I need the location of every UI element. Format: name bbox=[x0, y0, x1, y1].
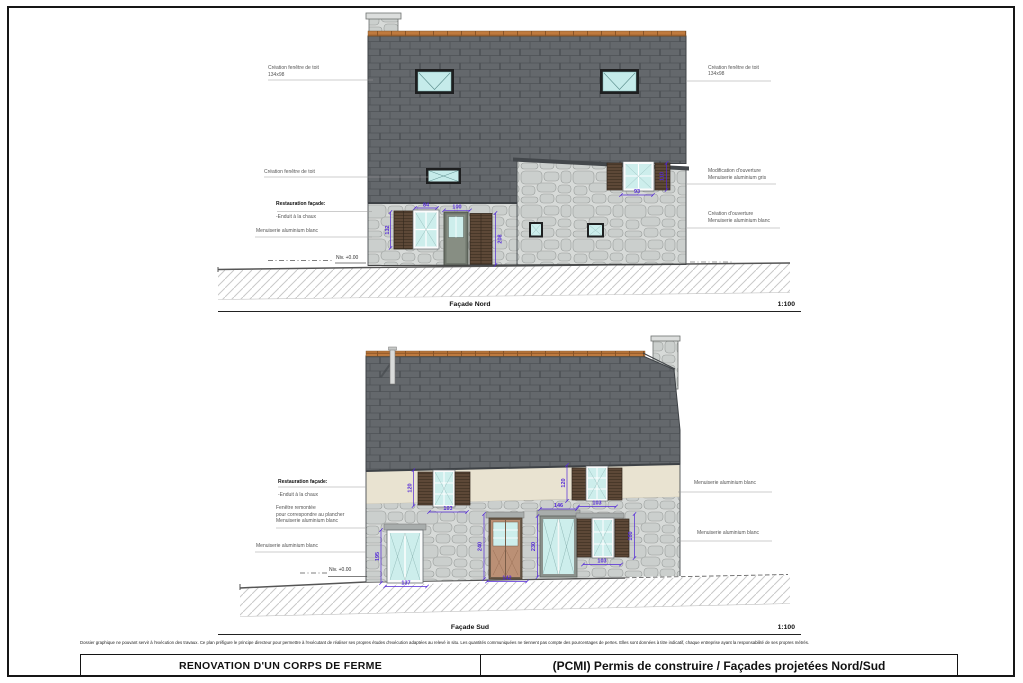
upper-window-sud-1 bbox=[418, 470, 470, 507]
annotation-menuiserie-sud-right-1: Menuiserie aluminium blanc bbox=[694, 480, 756, 487]
small-window-nord-1 bbox=[529, 222, 543, 238]
annotation-title: Restauration façade: bbox=[276, 201, 325, 208]
window-nord-left bbox=[413, 210, 439, 249]
disclaimer-text: Dossier graphique ne pouvant servir à l'… bbox=[80, 640, 962, 645]
dim-upper2-height: 120 bbox=[561, 478, 567, 487]
small-window-nord-2 bbox=[587, 223, 604, 238]
dim-glazed-door-height: 230 bbox=[531, 542, 537, 551]
roof-window-right bbox=[600, 69, 639, 94]
dim-upper1-width: 103 bbox=[443, 506, 452, 512]
elevation-drawings: 84 100 132 208 93 110 bbox=[0, 0, 1023, 683]
roof-sud bbox=[366, 351, 680, 472]
dim-upper2-width: 103 bbox=[592, 501, 601, 507]
annotation-roof-window-right: Création fenêtre de toit 134x98 bbox=[708, 65, 759, 78]
scale-facade-nord: 1:100 bbox=[758, 301, 795, 308]
annotation-menuiserie-nord-left: Menuiserie aluminium blanc bbox=[256, 228, 318, 235]
annotation-roof-window-small: Création fenêtre de toit bbox=[264, 169, 315, 176]
level-label-nord: Niv. +0.00 bbox=[336, 255, 358, 261]
dim-upper-window-height: 110 bbox=[660, 172, 666, 181]
level-line-sud bbox=[300, 573, 367, 577]
annotation-title: Restauration façade: bbox=[278, 479, 327, 486]
upper-window-sud-2 bbox=[572, 466, 622, 501]
annotation-restauration-facade-sud: Restauration façade: -Enduit à la chaux bbox=[278, 472, 327, 505]
dim-door-width: 142 bbox=[502, 576, 511, 582]
annotation-menuiserie-sud-left: Menuiserie aluminium blanc bbox=[256, 543, 318, 550]
level-label-sud: Niv. +0.00 bbox=[329, 567, 351, 573]
roof-window-left bbox=[415, 69, 454, 94]
roof-window-small bbox=[426, 168, 461, 184]
drawing-sheet: 84 100 132 208 93 110 bbox=[0, 0, 1023, 683]
annotation-text: -Enduit à la chaux bbox=[276, 214, 325, 221]
caption-facade-sud: Façade Sud bbox=[390, 624, 550, 631]
facade-nord-drawing: 84 100 132 208 93 110 bbox=[218, 13, 801, 312]
dim-tall-window-height: 195 bbox=[375, 552, 381, 561]
annotation-roof-window-left: Création fenêtre de toit 134x98 bbox=[268, 65, 319, 78]
ridge-tiles bbox=[366, 351, 645, 356]
dim-upper-window-width: 93 bbox=[634, 189, 640, 195]
louvered-panel-nord bbox=[470, 214, 492, 265]
title-block: RENOVATION D'UN CORPS DE FERME (PCMI) Pe… bbox=[80, 654, 958, 677]
tall-window-sud bbox=[384, 524, 426, 583]
annotation-creation-ouverture: Création d'ouverture Menuiserie aluminiu… bbox=[708, 211, 770, 224]
project-title: RENOVATION D'UN CORPS DE FERME bbox=[81, 655, 481, 676]
document-title: (PCMI) Permis de construire / Façades pr… bbox=[481, 655, 957, 676]
dim-window-height: 132 bbox=[385, 225, 391, 234]
dim-tall-window-width: 137 bbox=[401, 581, 410, 587]
annotation-text: -Enduit à la chaux bbox=[278, 492, 327, 499]
wood-door-sud bbox=[486, 512, 524, 579]
caption-facade-nord: Façade Nord bbox=[390, 301, 550, 308]
level-line-nord bbox=[268, 261, 366, 264]
dim-door-width: 100 bbox=[452, 205, 461, 211]
dim-window-width: 84 bbox=[423, 202, 430, 208]
annotation-restauration-facade-nord: Restauration façade: -Enduit à la chaux bbox=[276, 195, 325, 228]
dim-upper1-height: 120 bbox=[408, 483, 414, 492]
shutters-nord-left bbox=[394, 211, 413, 249]
annotation-modification-ouverture: Modification d'ouverture Menuiserie alum… bbox=[708, 168, 766, 181]
glazed-door-sud bbox=[537, 510, 580, 577]
annotation-fenetre-remontee: Fenêtre remontée pour correspondre au pl… bbox=[276, 505, 344, 525]
ground-sud bbox=[240, 575, 790, 617]
dim-glazed-door-width: 146 bbox=[554, 503, 563, 509]
annotation-menuiserie-sud-right-2: Menuiserie aluminium blanc bbox=[697, 530, 759, 537]
dim-door-height: 208 bbox=[498, 234, 504, 243]
vent-pipe bbox=[389, 347, 397, 384]
dim-window2-width: 103 bbox=[597, 559, 606, 565]
ridge-tiles bbox=[368, 31, 686, 36]
shuttered-window-sud bbox=[576, 513, 629, 558]
dim-door-height: 240 bbox=[478, 542, 484, 551]
ground-nord bbox=[218, 262, 790, 300]
dim-window2-height: 160 bbox=[628, 531, 634, 540]
scale-facade-sud: 1:100 bbox=[758, 624, 795, 631]
entry-door-nord bbox=[444, 212, 468, 266]
